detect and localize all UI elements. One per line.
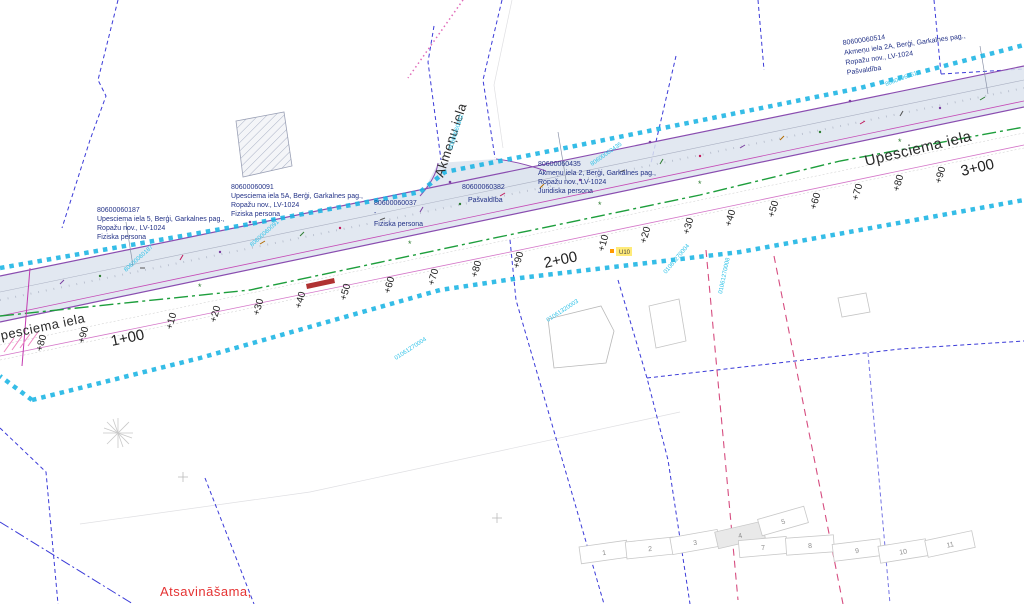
sheet-index-strip: 1 2 3 4 5 7 8 9 10 11 [579, 506, 975, 564]
hatched-building [236, 112, 292, 177]
svg-text:Pašvaldība: Pašvaldība [846, 65, 881, 77]
svg-text:*: * [408, 239, 412, 249]
station-label-major: 1+00 [109, 326, 146, 350]
station-label: +40 [723, 208, 738, 228]
cadastral-road-plan: *** ** 1 2 3 4 5 7 8 9 10 11 [0, 0, 1024, 604]
grid-cross [178, 472, 502, 523]
svg-text:80600060037: 80600060037 [374, 200, 417, 207]
station-label: +60 [382, 275, 397, 295]
station-label-major: 2+00 [542, 248, 579, 272]
sheet-number: 7 [761, 545, 766, 552]
station-label: +90 [511, 250, 526, 270]
station-label: +20 [638, 225, 653, 245]
boundary-lower-stub [0, 376, 32, 400]
station-label: +60 [808, 191, 823, 211]
pink-dotted-line [408, 0, 463, 78]
misc-symbols [103, 418, 502, 523]
sheet-number: 10 [899, 548, 908, 556]
svg-text:Ropažu nov., LV-1024: Ropažu nov., LV-1024 [538, 179, 606, 186]
boundary-id: 01061270008 [718, 257, 732, 295]
station-label: +50 [338, 282, 353, 302]
svg-text:Upesciema iela 5A, Berģi, Gark: Upesciema iela 5A, Berģi, Garkalnes pag.… [231, 192, 363, 200]
boundary-id: 01061270004 [394, 336, 429, 361]
svg-text:Fiziska persona: Fiziska persona [231, 211, 280, 218]
svg-text:Fiziska persona: Fiziska persona [374, 221, 423, 228]
station-label: +30 [251, 297, 266, 317]
notes: Atsavināšama, U10 [160, 247, 632, 599]
utility-label-u10: U10 [619, 250, 631, 256]
boundary-id: 01061270004 [663, 243, 692, 275]
svg-text:Ropažu nov., LV-1024: Ropažu nov., LV-1024 [231, 202, 299, 209]
station-label: +70 [0, 341, 3, 361]
svg-text:*: * [598, 200, 602, 210]
svg-text:Juridiska persona: Juridiska persona [538, 188, 593, 195]
station-label: +80 [469, 259, 484, 279]
svg-text:Ropažu nov., LV-1024: Ropažu nov., LV-1024 [97, 225, 165, 232]
station-label: +20 [208, 304, 223, 324]
boundary-topleft [62, 0, 118, 228]
red-patch [306, 278, 335, 289]
svg-text:*: * [198, 282, 202, 292]
svg-text:Upesciema iela 5, Berģi, Garka: Upesciema iela 5, Berģi, Garkalnes pag., [97, 215, 224, 223]
road-edge-top [0, 66, 1024, 276]
station-label: +30 [681, 216, 696, 236]
station-label: +50 [766, 199, 781, 219]
station-label: +10 [164, 311, 179, 331]
plan-drawing: *** ** 1 2 3 4 5 7 8 9 10 11 [0, 0, 1024, 604]
road-corridor: *** ** [0, 46, 1024, 366]
svg-text:80600060382: 80600060382 [462, 184, 505, 191]
station-label: +90 [76, 325, 91, 345]
boundary-id: 01061320003 [546, 298, 581, 323]
expropriation-note: Atsavināšama, [160, 584, 252, 599]
svg-text:Akmeņu iela 2, Berģi, Garkalne: Akmeņu iela 2, Berģi, Garkalnes pag., [538, 169, 656, 177]
sheet-number: 8 [808, 543, 812, 550]
station-label: +80 [34, 333, 49, 353]
station-label: +70 [850, 182, 865, 202]
station-label: +90 [933, 165, 948, 185]
svg-text:80600060187: 80600060187 [97, 207, 140, 214]
sheet-number: 11 [946, 541, 955, 549]
parcel-label-0514: 80600060514 Akmeņu iela 2A, Berģi, Garka… [842, 23, 969, 77]
station-label: +10 [596, 233, 611, 253]
station-label-major: 3+00 [959, 156, 996, 180]
star-symbol [103, 418, 133, 448]
cadastral-boundary-lines [0, 0, 1024, 604]
svg-text:Pašvaldība: Pašvaldība [468, 197, 503, 204]
svg-text:Fiziska persona: Fiziska persona [97, 234, 146, 241]
station-label: +40 [293, 290, 308, 310]
boundary-lower [32, 200, 1024, 400]
boundary-akmenu-left [428, 26, 441, 160]
boundary-akmenu-right [483, 0, 502, 158]
station-label: +80 [891, 173, 906, 193]
road-edge-bottom [0, 107, 1024, 322]
svg-text:80600060435: 80600060435 [538, 161, 581, 168]
svg-text:80600060091: 80600060091 [231, 184, 274, 191]
svg-text:*: * [698, 179, 702, 189]
station-label: +70 [426, 267, 441, 287]
